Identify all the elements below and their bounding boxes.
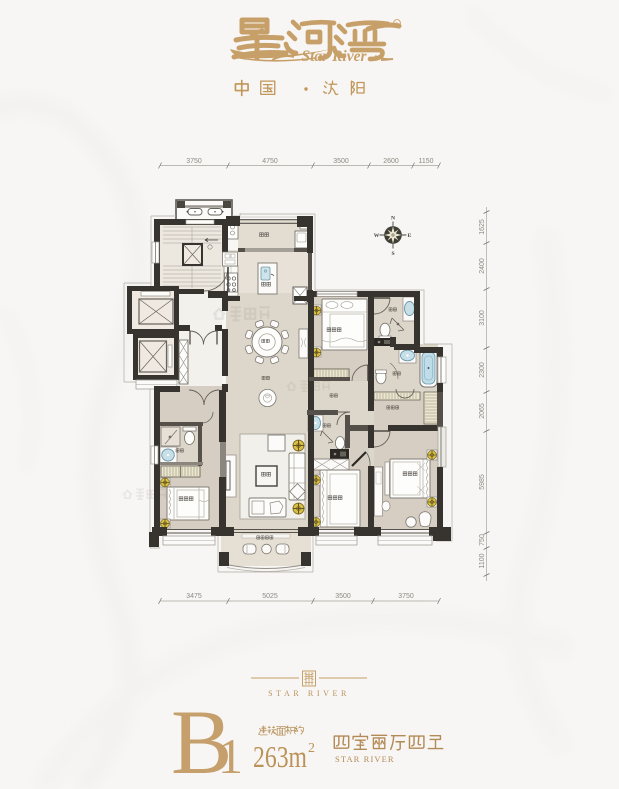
svg-text:1150: 1150 (418, 158, 433, 165)
svg-text:3500: 3500 (333, 158, 349, 165)
svg-text:S: S (391, 251, 394, 257)
svg-text:2600: 2600 (383, 158, 399, 165)
svg-text:1: 1 (218, 728, 243, 784)
svg-text:5025: 5025 (262, 593, 278, 600)
svg-text:5985: 5985 (479, 474, 486, 490)
svg-text:1625: 1625 (479, 219, 486, 235)
svg-text:2300: 2300 (479, 362, 486, 378)
svg-text:3750: 3750 (186, 158, 202, 165)
svg-text:2: 2 (308, 741, 315, 756)
svg-text:E: E (408, 233, 412, 239)
svg-text:3750: 3750 (398, 593, 414, 600)
svg-text:263m: 263m (253, 739, 307, 774)
svg-text:2065: 2065 (479, 403, 486, 419)
svg-text:STAR RIVER: STAR RIVER (335, 754, 395, 764)
svg-text:750: 750 (479, 534, 486, 546)
svg-text:W: W (374, 233, 380, 239)
svg-text:3100: 3100 (479, 310, 486, 326)
svg-text:1100: 1100 (479, 553, 486, 568)
svg-text:3500: 3500 (335, 593, 351, 600)
svg-text:2400: 2400 (479, 258, 486, 274)
svg-text:4750: 4750 (262, 158, 278, 165)
svg-text:Star River: Star River (301, 48, 367, 65)
svg-text:STAR RIVER: STAR RIVER (268, 689, 350, 698)
svg-text:N: N (391, 216, 395, 222)
svg-text:3475: 3475 (186, 593, 202, 600)
